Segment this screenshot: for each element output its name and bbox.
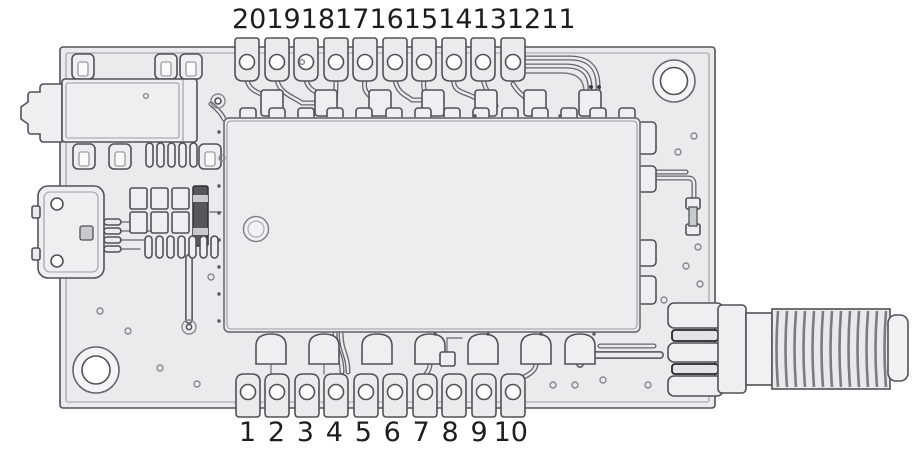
pcb-drawing [0, 0, 912, 460]
sma-end-cap [888, 315, 908, 381]
pin-label-9: 9 [465, 417, 494, 451]
pin-label-14: 14 [438, 4, 472, 38]
sma-neck [746, 313, 772, 385]
mounting-hole-top-right [653, 60, 695, 102]
rf-module-shield [217, 108, 656, 336]
pin-label-13: 13 [473, 4, 507, 38]
sma-flange [718, 305, 746, 393]
pin-label-8: 8 [436, 417, 465, 451]
pin-label-2: 2 [262, 417, 291, 451]
pin-label-10: 10 [494, 417, 528, 451]
pin-label-7: 7 [407, 417, 436, 451]
usb-comb-pads [145, 236, 218, 258]
jack-comb-pads [146, 143, 197, 167]
jack-barrel [21, 84, 62, 142]
pcb-pinout-diagram: 20 19 18 17 16 15 14 13 12 11 1 2 3 4 5 … [0, 0, 912, 460]
pin-label-16: 16 [369, 4, 403, 38]
pin-label-20: 20 [232, 4, 266, 38]
pin-label-6: 6 [378, 417, 407, 451]
pin-label-5: 5 [349, 417, 378, 451]
pin-label-3: 3 [291, 417, 320, 451]
bottom-pin-labels: 1 2 3 4 5 6 7 8 9 10 [233, 417, 528, 451]
sma-threads [772, 309, 890, 389]
pin-label-15: 15 [404, 4, 438, 38]
pin-label-18: 18 [301, 4, 335, 38]
pin-label-11: 11 [541, 4, 575, 38]
mounting-hole-bottom-left [73, 347, 119, 393]
pin-label-19: 19 [266, 4, 300, 38]
pin-label-12: 12 [507, 4, 541, 38]
pin-label-1: 1 [233, 417, 262, 451]
pin-label-4: 4 [320, 417, 349, 451]
pin1-marker-dot [244, 217, 269, 242]
top-pin-labels: 20 19 18 17 16 15 14 13 12 11 [232, 4, 528, 38]
sma-antenna-connector [668, 303, 908, 396]
pin-label-17: 17 [335, 4, 369, 38]
